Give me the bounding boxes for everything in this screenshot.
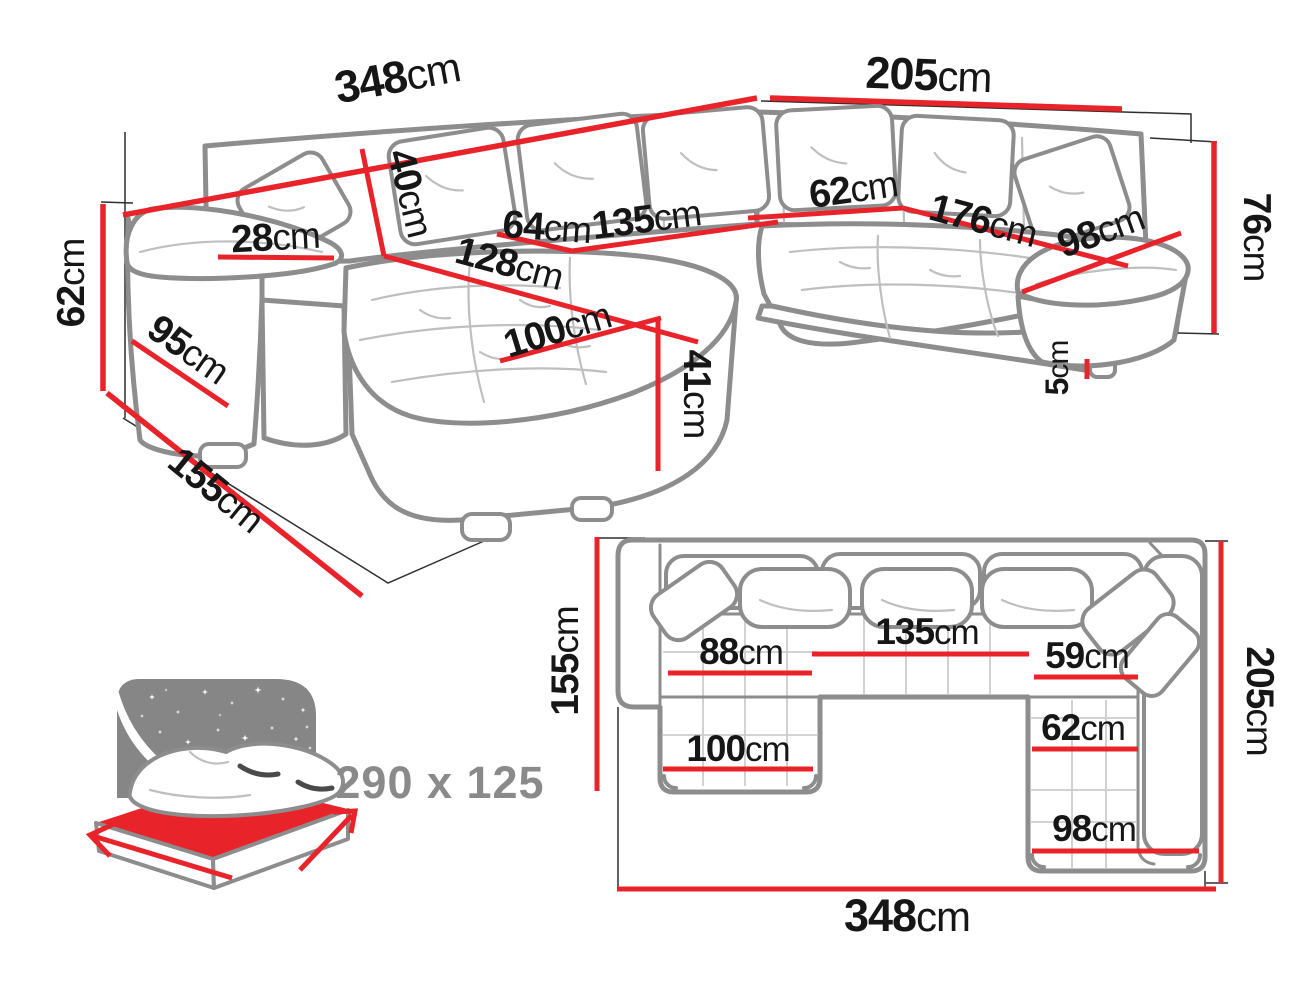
sleeping-size-label: 290 x 125 — [335, 757, 544, 808]
plan-label-total-width: 348cm — [844, 890, 970, 941]
height-bottom-tick — [1178, 333, 1219, 334]
plan-label-total-depth: 205cm — [1238, 646, 1281, 755]
plan-label-chaise-width: 100cm — [686, 728, 789, 769]
plan-label-left-depth: 155cm — [544, 606, 587, 715]
sofa-dimension-diagram: 348cm 205cm 76cm 62cm 40cm 128cm 28cm 95… — [0, 0, 1312, 984]
plan-label-corner-seat-width: 59cm — [1045, 635, 1129, 676]
dim-label-arm-top-width: 28cm — [230, 214, 321, 262]
arm-height-top-tick — [101, 202, 133, 203]
plan-label-chaise-seat-width: 88cm — [699, 631, 783, 672]
plan-label-middle-seat-width: 135cm — [875, 611, 978, 652]
plan-label-right-seat-width: 62cm — [1041, 707, 1125, 748]
height-top-tick — [1150, 138, 1217, 142]
dim-label-seat-depth: 64cm — [501, 203, 593, 252]
plan-label-right-return-width: 98cm — [1052, 808, 1136, 849]
duvet — [130, 744, 343, 816]
dim-label-right-back-width: 205cm — [865, 47, 993, 102]
dim-label-leg-height: 5cm — [1039, 341, 1075, 396]
chaise-foot-front — [462, 514, 510, 540]
dim-label-arm-height: 62cm — [50, 239, 93, 328]
perspective-view: 348cm 205cm 76cm 62cm 40cm 128cm 28cm 95… — [50, 40, 1278, 596]
dim-label-total-height: 76cm — [1235, 193, 1278, 282]
dim-label-seat-height: 41cm — [675, 350, 718, 439]
dim-label-back-width: 348cm — [331, 40, 464, 113]
diagram-canvas: 348cm 205cm 76cm 62cm 40cm 128cm 28cm 95… — [0, 0, 1312, 984]
left-seat-side — [262, 300, 346, 445]
sleeping-function-icon: 290 x 125 — [90, 679, 545, 888]
chaise-foot-right — [572, 498, 612, 520]
top-view: 155cm 205cm 348cm 88cm 135cm 59cm 62cm 1… — [544, 537, 1281, 941]
